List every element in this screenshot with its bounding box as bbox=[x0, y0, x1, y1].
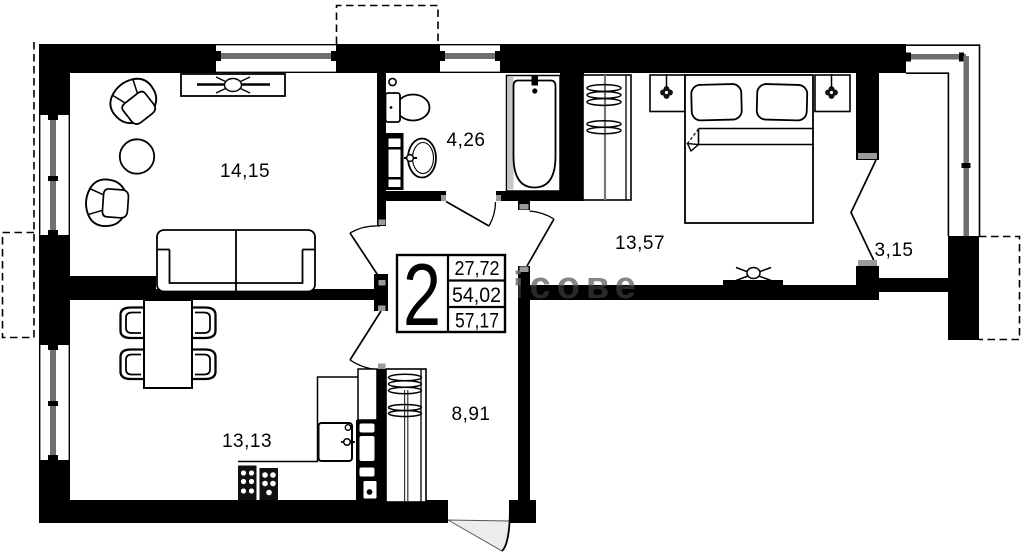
svg-text:54,02: 54,02 bbox=[452, 283, 501, 307]
svg-text:27,72: 27,72 bbox=[455, 257, 500, 280]
svg-text:13,57: 13,57 bbox=[615, 233, 665, 254]
svg-text:2: 2 bbox=[403, 245, 441, 344]
svg-text:8,91: 8,91 bbox=[452, 404, 491, 425]
svg-text:3,15: 3,15 bbox=[875, 240, 914, 261]
svg-text:14,15: 14,15 bbox=[220, 161, 270, 182]
svg-text:13,13: 13,13 bbox=[222, 431, 272, 452]
svg-text:57,17: 57,17 bbox=[455, 310, 499, 333]
svg-text:4,26: 4,26 bbox=[447, 130, 486, 151]
